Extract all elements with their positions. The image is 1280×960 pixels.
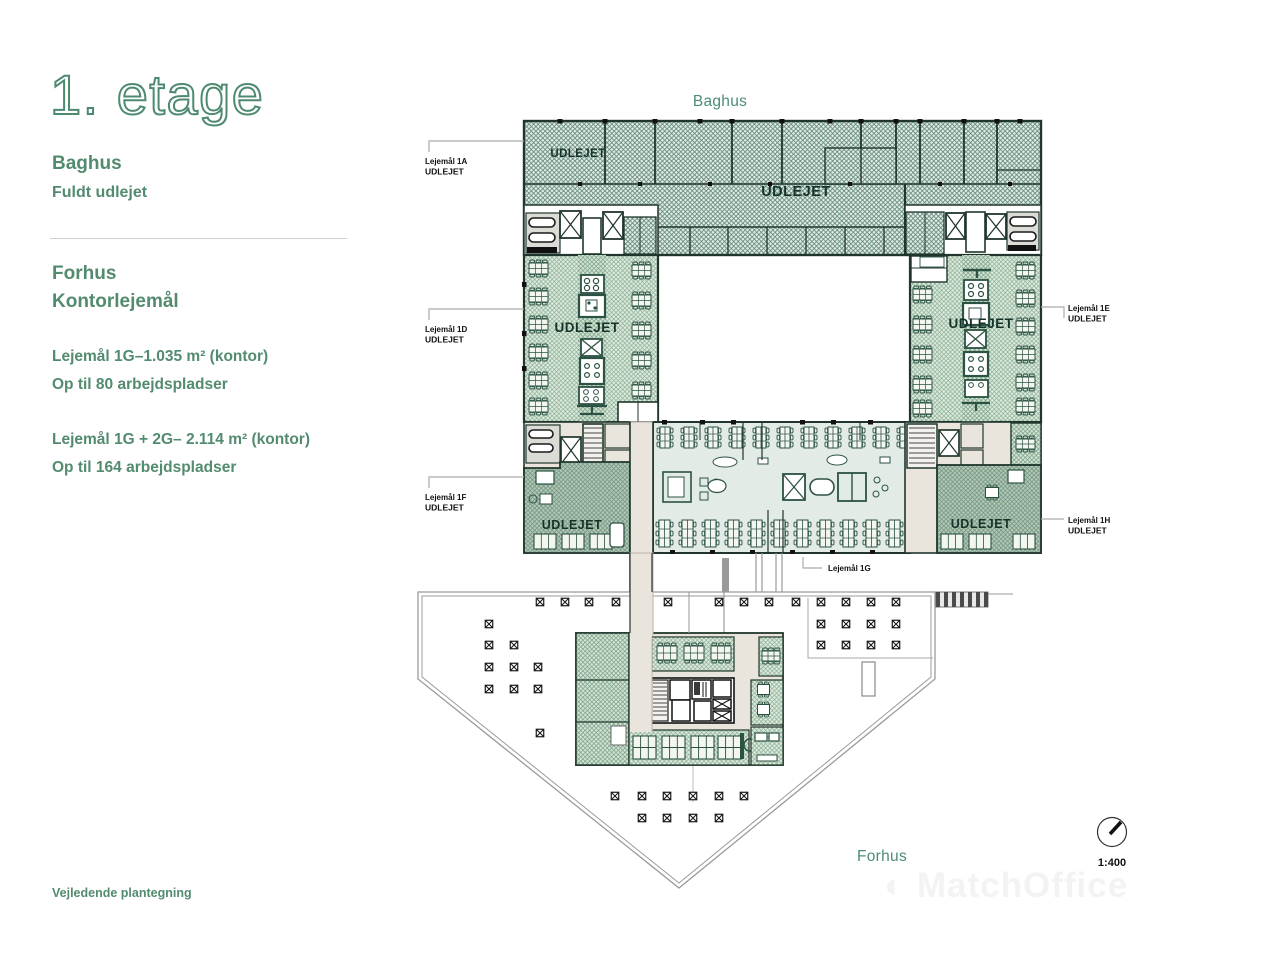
svg-text:Forhus: Forhus [857, 848, 907, 865]
svg-text:UDLEJET: UDLEJET [1068, 526, 1108, 536]
svg-text:UDLEJET: UDLEJET [542, 518, 602, 532]
svg-text:Lejemål 1F: Lejemål 1F [425, 493, 466, 502]
svg-text:Lejemål 1D: Lejemål 1D [425, 325, 467, 334]
svg-text:Lejemål 1A: Lejemål 1A [425, 157, 467, 166]
svg-text:UDLEJET: UDLEJET [948, 316, 1013, 331]
svg-text:1:400: 1:400 [1098, 857, 1126, 869]
svg-text:Lejemål 1G: Lejemål 1G [828, 564, 871, 573]
svg-text:UDLEJET: UDLEJET [951, 517, 1011, 531]
svg-text:Lejemål 1E: Lejemål 1E [1068, 304, 1110, 313]
svg-text:UDLEJET: UDLEJET [554, 320, 619, 335]
svg-text:Lejemål 1H: Lejemål 1H [1068, 516, 1110, 525]
svg-text:UDLEJET: UDLEJET [550, 148, 605, 160]
svg-text:UDLEJET: UDLEJET [1068, 314, 1108, 324]
svg-text:UDLEJET: UDLEJET [425, 335, 465, 345]
svg-text:Baghus: Baghus [693, 93, 747, 110]
svg-text:UDLEJET: UDLEJET [425, 167, 465, 177]
svg-text:UDLEJET: UDLEJET [425, 503, 465, 513]
svg-text:UDLEJET: UDLEJET [761, 184, 831, 200]
